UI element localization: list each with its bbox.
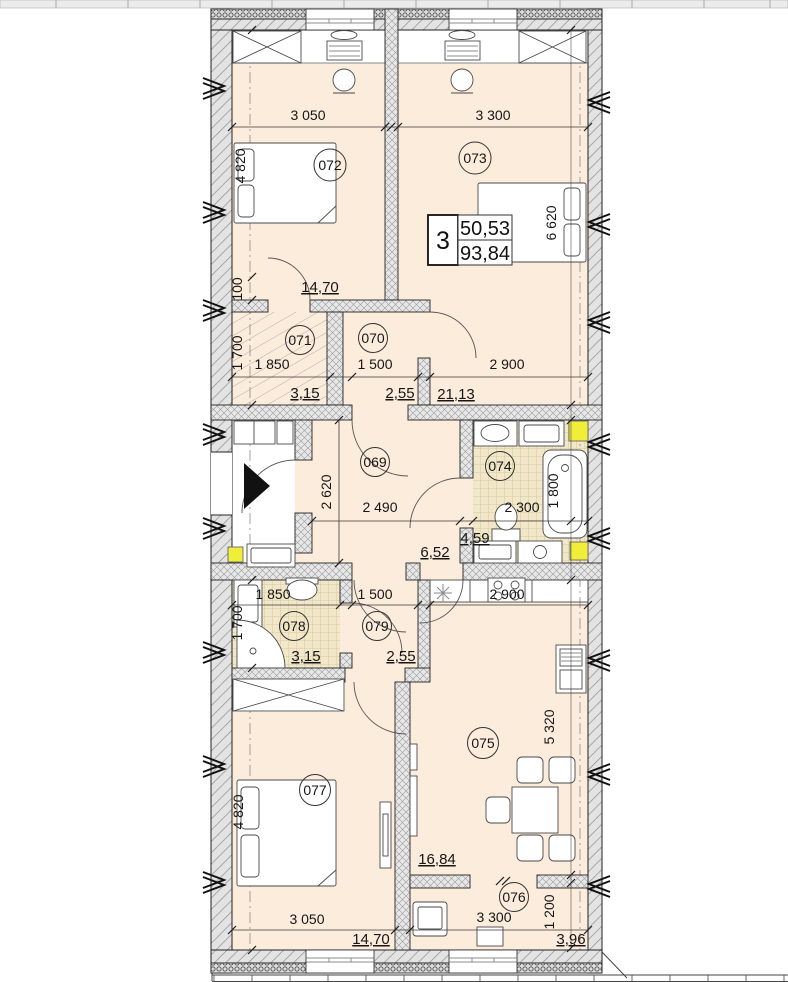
dim-071-width: 1 850 (254, 356, 289, 372)
bench-icon (247, 544, 295, 567)
top-ruler (0, 0, 788, 8)
wall-070-073 (418, 358, 430, 405)
outer-wall-top (211, 19, 602, 30)
office-chair-icon (333, 69, 355, 91)
dim-072-height: 4 820 (232, 148, 248, 183)
hall-cabinet-icon (234, 421, 275, 444)
wall-079-075 (418, 580, 430, 668)
chair-icon (517, 757, 543, 783)
summary-total-area: 93,84 (460, 243, 510, 265)
shaft-left (228, 547, 243, 562)
svg-text:072: 072 (318, 157, 342, 173)
desk-lamp-icon (331, 31, 357, 40)
dining-table-icon (512, 787, 558, 833)
outer-wall-bottom (211, 950, 602, 963)
dim-073-height: 6 620 (543, 205, 559, 240)
bed-icon (234, 143, 336, 223)
outer-wall-bottom-insulation (211, 963, 602, 973)
summary-rooms-count: 3 (436, 227, 450, 255)
area-075: 16,84 (418, 851, 456, 868)
wall-077-075 (395, 682, 410, 950)
svg-text:073: 073 (463, 150, 487, 166)
area-073: 21,13 (437, 386, 475, 403)
wall-069-074 (460, 420, 473, 478)
office-chair-icon (451, 69, 473, 91)
dim-073-width2: 2 900 (489, 356, 524, 372)
wall-072-073 (385, 9, 398, 300)
area-076: 3,96 (556, 931, 585, 948)
wall-075-076 (410, 875, 470, 888)
chair-icon (517, 835, 543, 861)
dim-071-height: 1 700 (229, 335, 245, 370)
desk-icon (445, 41, 480, 60)
area-078: 3,15 (291, 648, 320, 665)
shaft-right (570, 542, 588, 560)
svg-text:074: 074 (488, 458, 512, 474)
tv-icon (410, 776, 417, 836)
area-079: 2,55 (386, 648, 415, 665)
wall-mid-upper (211, 405, 352, 420)
svg-text:078: 078 (282, 618, 306, 634)
area-069: 6,52 (420, 544, 449, 561)
window-top-left (306, 9, 374, 30)
sink-icon (287, 580, 317, 600)
area-077: 14,70 (352, 931, 390, 948)
dim-069-width: 2 490 (362, 499, 397, 515)
chair-icon (486, 797, 510, 823)
svg-text:070: 070 (361, 330, 385, 346)
tv-stand-icon (410, 744, 417, 770)
dim-077-height: 4 820 (230, 794, 246, 829)
window-top-right (449, 9, 517, 30)
entrance-opening (211, 452, 232, 515)
dim-078-width: 1 850 (255, 586, 290, 602)
desk-icon (327, 41, 362, 60)
dim-074-width: 2 300 (504, 499, 539, 515)
dim-079-width: 1 500 (357, 586, 392, 602)
svg-text:069: 069 (363, 454, 387, 470)
area-070: 2,55 (385, 385, 414, 402)
dim-074-height: 1 800 (545, 473, 561, 508)
window-bottom-right (449, 950, 517, 973)
svg-text:071: 071 (288, 332, 312, 348)
dim-left-small: 100 (229, 277, 245, 301)
shaft-top-right (569, 421, 588, 441)
svg-text:075: 075 (471, 735, 495, 751)
dim-073-width: 3 300 (475, 107, 510, 123)
floor-plan-page: 3 050 3 300 4 820 100 1 700 6 620 1 850 … (0, 0, 788, 982)
summary-living-area: 50,53 (460, 218, 510, 240)
wall-078-079 (340, 580, 352, 603)
dim-075-width: 2 900 (489, 586, 524, 602)
dim-077-width: 3 050 (289, 911, 324, 927)
area-072: 14,70 (301, 279, 339, 296)
area-074: 4,59 (460, 530, 489, 547)
dim-076-height: 1 200 (541, 894, 557, 929)
desk-lamp-icon (449, 31, 475, 40)
dim-069-height: 2 620 (318, 474, 334, 509)
dim-078-height: 1 700 (229, 605, 245, 640)
apartment-summary-box: 3 50,53 93,84 (428, 215, 512, 265)
svg-text:076: 076 (502, 889, 526, 905)
outer-wall-right (588, 9, 602, 973)
dim-076-width: 3 300 (476, 909, 511, 925)
svg-text:079: 079 (365, 618, 389, 634)
floor-plan-drawing: 3 050 3 300 4 820 100 1 700 6 620 1 850 … (0, 0, 788, 982)
svg-text:077: 077 (303, 782, 327, 798)
dim-070-width: 1 500 (357, 356, 392, 372)
wall-071-070 (327, 312, 343, 405)
dresser-icon (380, 802, 391, 868)
area-071: 3,15 (290, 385, 319, 402)
window-bottom-left (306, 950, 374, 973)
appliance-icon (518, 541, 562, 563)
dim-072-width: 3 050 (290, 107, 325, 123)
outer-wall-top-insulation (211, 9, 602, 19)
dim-075-height: 5 320 (541, 709, 557, 744)
wall-vestibule-069 (295, 420, 312, 460)
